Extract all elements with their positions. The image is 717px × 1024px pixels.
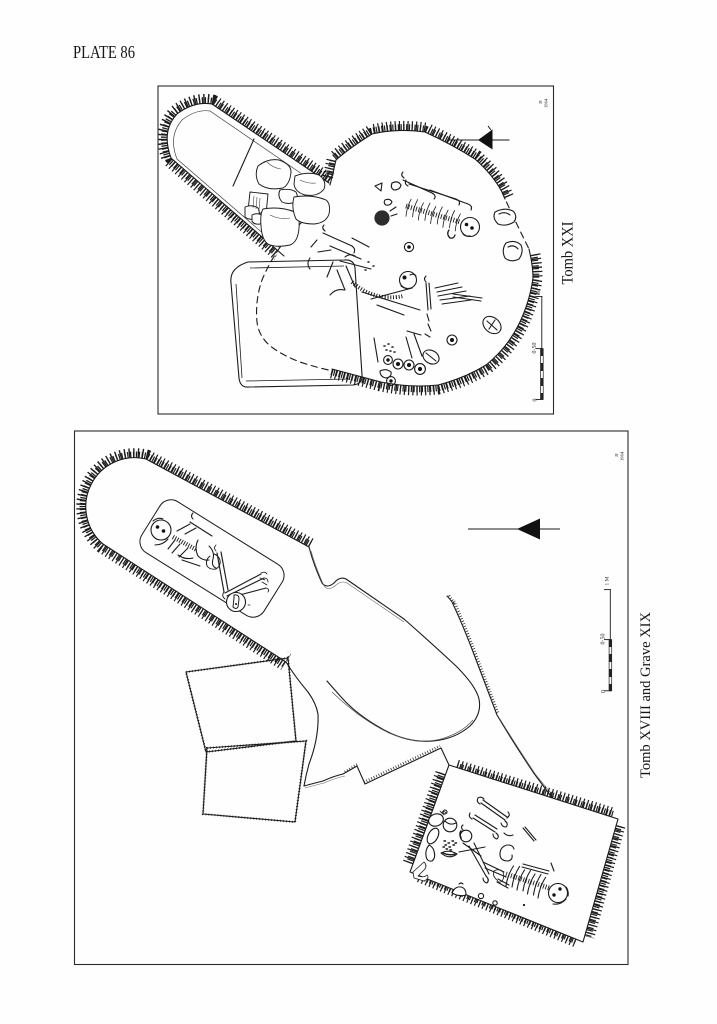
svg-text:0·50: 0·50 xyxy=(532,343,538,354)
svg-text:Tomb XVIII and Grave XIX: Tomb XVIII and Grave XIX xyxy=(638,612,654,778)
svg-text:0·50: 0·50 xyxy=(601,634,607,645)
svg-text:0: 0 xyxy=(601,690,607,693)
svg-text:JJ: JJ xyxy=(614,453,619,457)
svg-text:1 M: 1 M xyxy=(605,576,611,585)
svg-text:1964: 1964 xyxy=(620,451,625,461)
svg-text:Tomb XXI: Tomb XXI xyxy=(560,222,577,285)
svg-text:JJ: JJ xyxy=(538,100,543,104)
svg-text:1964: 1964 xyxy=(544,98,549,108)
svg-text:PLATE 86: PLATE 86 xyxy=(73,42,135,62)
svg-text:0: 0 xyxy=(533,399,539,402)
